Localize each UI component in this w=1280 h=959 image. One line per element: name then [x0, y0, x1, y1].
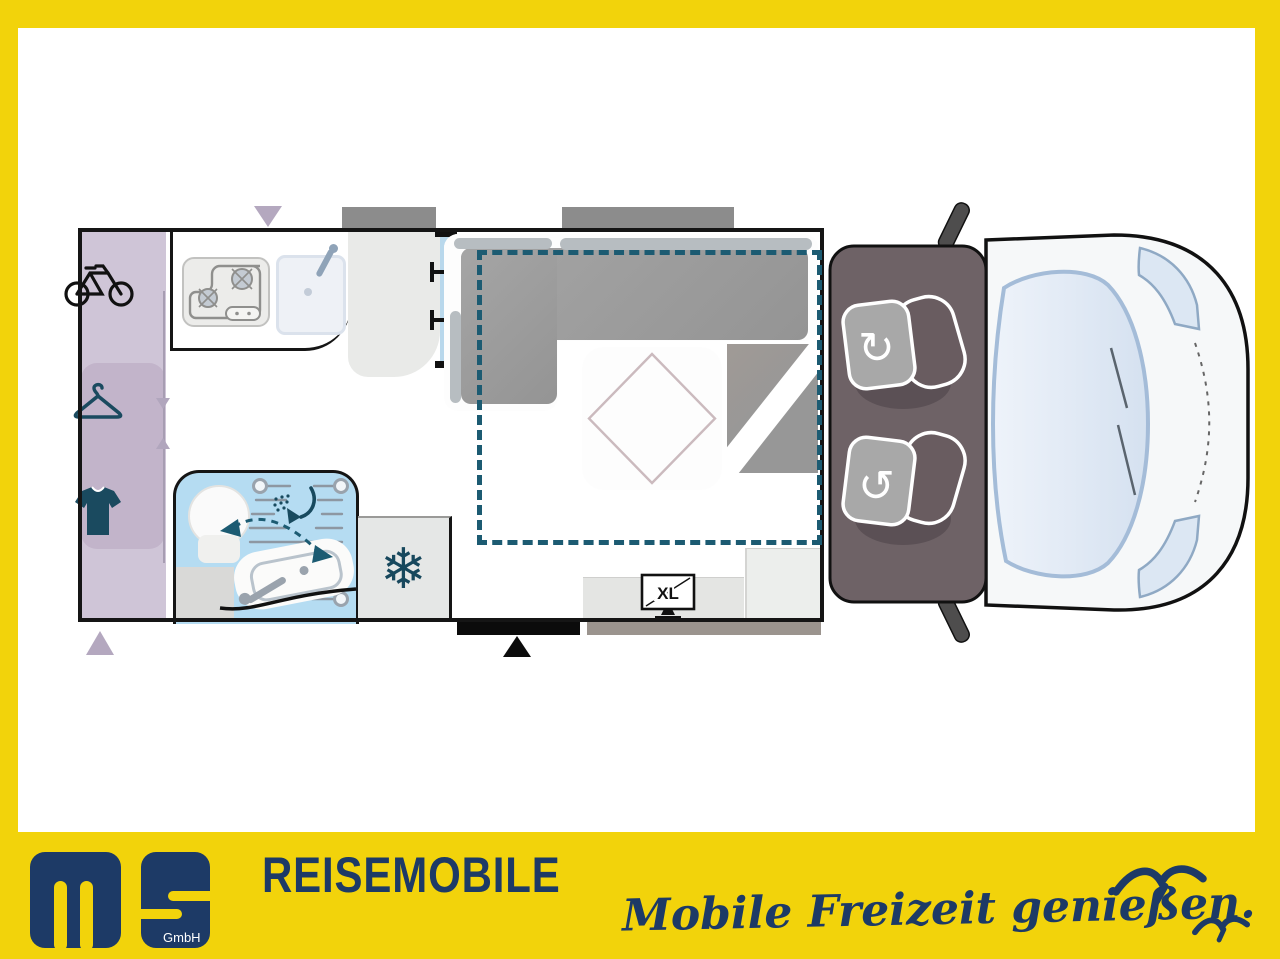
sink-drain-icon — [304, 288, 312, 296]
entry-marker-top-icon — [254, 206, 282, 227]
wall-rear — [78, 228, 82, 622]
sink — [276, 255, 346, 335]
cab-floor — [830, 246, 986, 602]
swivel-cw-icon: ↻ — [858, 323, 895, 374]
sofa-backrest-1 — [454, 238, 552, 249]
sofa-backrest-2 — [560, 238, 812, 250]
wall-top — [78, 228, 824, 232]
basin-swivel-arrows — [176, 473, 356, 621]
tall-cabinet — [348, 232, 440, 377]
partition-arrow-down-icon — [156, 398, 170, 409]
stove-icon — [182, 257, 270, 327]
bicycle-icon — [64, 256, 134, 310]
garage-marker-icon — [86, 631, 114, 655]
snowflake-icon: ❄ — [380, 542, 427, 598]
tv-size-label: XL — [657, 584, 679, 603]
skirt-bar — [587, 622, 821, 635]
cab-and-front: ↻ ↺ — [818, 193, 1264, 667]
drop-down-bed-outline — [477, 250, 822, 545]
partition-line — [163, 291, 165, 563]
listing-image: ❄ XL — [0, 0, 1280, 959]
seagull-icon-small — [1192, 908, 1250, 944]
seagull-icon-large — [1112, 856, 1207, 908]
faucet-base-icon — [329, 244, 338, 253]
entry-arrow-icon — [503, 636, 531, 657]
entry-door-bar — [457, 622, 580, 635]
dealer-name: REISEMOBILE — [262, 846, 561, 904]
ms-logo: GmbH — [30, 852, 212, 948]
tv-xl-icon: XL — [637, 573, 699, 621]
side-cabinet — [745, 548, 824, 621]
gmbh-label: GmbH — [163, 930, 201, 945]
partition-arrow-up-icon — [156, 438, 170, 449]
fridge: ❄ — [358, 516, 452, 621]
sofa-backrest-side — [450, 311, 461, 403]
mirror-top-icon — [936, 201, 971, 253]
swivel-ccw-icon: ↺ — [858, 461, 895, 512]
bathroom — [173, 470, 359, 624]
windshield — [993, 272, 1148, 577]
